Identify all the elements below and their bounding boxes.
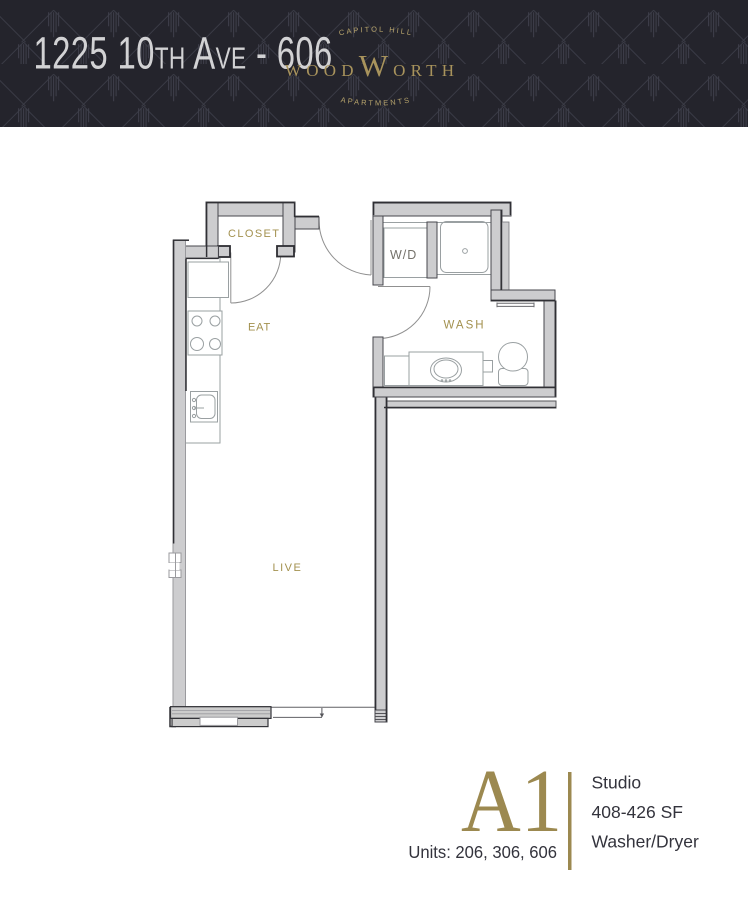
svg-text:LIVE: LIVE (273, 562, 303, 574)
svg-text:Units: 206, 306, 606: Units: 206, 306, 606 (408, 843, 557, 862)
svg-text:Studio: Studio (592, 773, 642, 793)
svg-text:A1: A1 (461, 751, 562, 851)
svg-text:CLOSET: CLOSET (228, 228, 280, 240)
svg-text:408-426 SF: 408-426 SF (592, 802, 683, 822)
svg-text:WASH: WASH (444, 320, 486, 332)
svg-text:EAT: EAT (248, 322, 271, 334)
svg-text:W/D: W/D (390, 248, 417, 262)
svg-text:Washer/Dryer: Washer/Dryer (592, 832, 699, 852)
